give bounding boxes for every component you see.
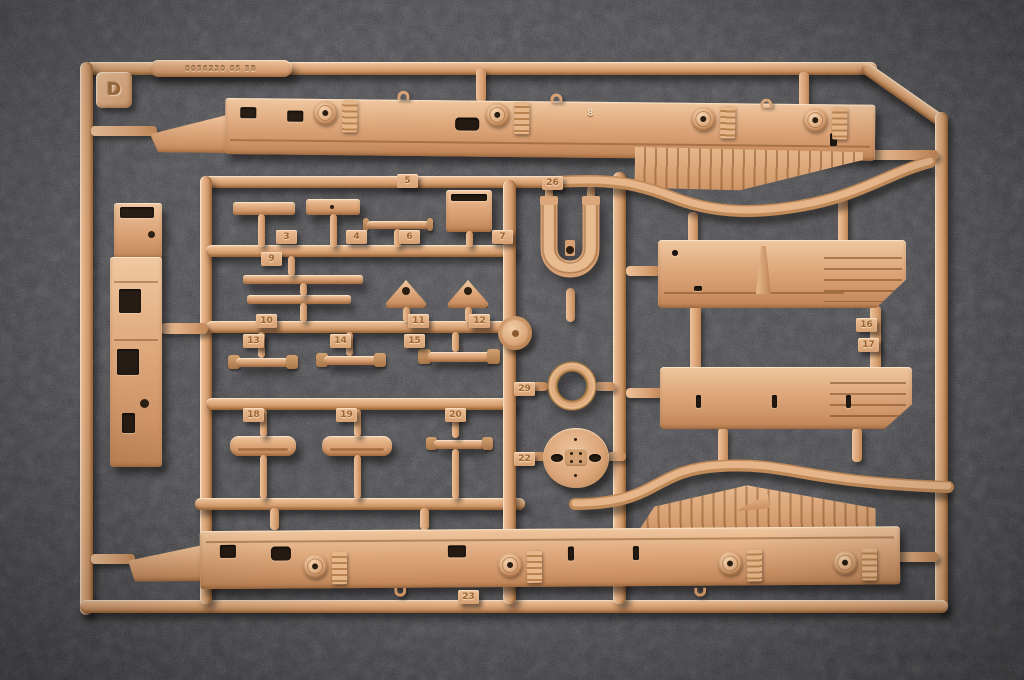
tag-label: 18 bbox=[247, 410, 260, 420]
part-number-tag: 12 bbox=[469, 314, 490, 328]
axle-hub bbox=[803, 108, 827, 132]
rod-end bbox=[427, 218, 433, 231]
panel-seam bbox=[114, 339, 158, 341]
part-chassis-rail-top: 8 bbox=[150, 92, 873, 192]
tag-label: 16 bbox=[860, 320, 873, 330]
axle-hub bbox=[485, 103, 509, 127]
part-equipment-box-upper bbox=[658, 240, 906, 308]
shackle bbox=[694, 588, 706, 597]
part-stem bbox=[260, 455, 267, 499]
tag-label: 11 bbox=[412, 316, 425, 326]
tag-label: 17 bbox=[862, 340, 875, 350]
part-number-tag: 15 bbox=[404, 334, 425, 348]
molded-part-number: 8 bbox=[587, 109, 593, 119]
bracket-detail bbox=[747, 549, 762, 581]
part-stem bbox=[300, 303, 307, 322]
part-number-tag: 7 bbox=[492, 230, 513, 244]
tag-label: 29 bbox=[518, 384, 531, 394]
part-stem bbox=[354, 455, 361, 499]
bracket-detail bbox=[527, 551, 542, 583]
drum-center-plate bbox=[565, 448, 587, 466]
bracket-detail bbox=[832, 107, 847, 139]
tag-label: 3 bbox=[283, 232, 289, 242]
part-number-tag: 26 bbox=[542, 176, 563, 190]
rail-cutout bbox=[448, 545, 466, 557]
part-number-tag: 4 bbox=[346, 230, 367, 244]
gusset-ribs bbox=[635, 145, 863, 191]
rail-cutout bbox=[240, 107, 256, 118]
coupler bbox=[482, 437, 493, 450]
part-tie-rod bbox=[367, 221, 429, 229]
dome-center bbox=[512, 330, 519, 337]
part-number-tag: 19 bbox=[336, 408, 357, 422]
drum-rivet bbox=[579, 460, 582, 463]
panel-slot bbox=[122, 413, 135, 433]
box-seam bbox=[664, 292, 844, 294]
lifting-eye bbox=[550, 93, 562, 102]
drum-rivet bbox=[579, 452, 582, 455]
rail-slot bbox=[568, 547, 574, 561]
part-ring bbox=[546, 361, 598, 411]
drum-rivet bbox=[570, 460, 573, 463]
rail-cutout bbox=[287, 111, 303, 122]
tag-label: 10 bbox=[260, 316, 273, 326]
part-mudguard-plate bbox=[230, 436, 296, 456]
part-number-tag: 29 bbox=[514, 382, 535, 396]
part-number-tag: 9 bbox=[261, 252, 282, 266]
box-slot bbox=[694, 286, 702, 291]
frame-left-rail bbox=[80, 62, 93, 615]
gate-stub bbox=[718, 428, 728, 468]
part-horseshoe-mount bbox=[533, 196, 607, 296]
sprue-letter: D bbox=[107, 80, 121, 100]
part-stem bbox=[452, 332, 459, 352]
part-number-tag: 6 bbox=[399, 230, 420, 244]
gate-stub bbox=[160, 323, 208, 334]
embossed-code: 0056230 05 5B bbox=[185, 65, 257, 73]
sprue-letter-tag: D bbox=[96, 72, 132, 108]
coupler bbox=[374, 353, 386, 367]
drum-slot bbox=[551, 454, 563, 462]
tag-label: 14 bbox=[334, 336, 347, 346]
coupler bbox=[286, 355, 298, 369]
part-axle bbox=[434, 440, 484, 449]
sprue-photo: D 0056230 05 5B bbox=[0, 0, 1024, 680]
part-number-tag: 11 bbox=[408, 314, 429, 328]
drum-rivet bbox=[570, 452, 573, 455]
tag-label: 4 bbox=[353, 232, 359, 242]
gate-stub bbox=[91, 126, 157, 136]
part-mudguard-plate bbox=[322, 436, 392, 456]
axle-hub bbox=[498, 553, 522, 577]
tag-label: 7 bbox=[499, 232, 505, 242]
lifting-eye bbox=[760, 99, 772, 108]
plate-groove bbox=[238, 448, 288, 451]
tag-label: 12 bbox=[473, 316, 486, 326]
part-number-tag: 13 bbox=[243, 334, 264, 348]
rail-cutout bbox=[271, 547, 291, 561]
gate-stub bbox=[868, 150, 938, 160]
rail-taper bbox=[150, 112, 234, 153]
bar-hole bbox=[330, 205, 334, 209]
box-louvers bbox=[830, 373, 906, 423]
tag-label: 20 bbox=[449, 410, 462, 420]
part-number-tag: 16 bbox=[856, 318, 877, 332]
axle-hub bbox=[718, 551, 742, 575]
part-axle bbox=[324, 356, 378, 365]
part-stem bbox=[452, 449, 459, 499]
part-axle bbox=[236, 358, 290, 367]
gate-stub bbox=[690, 306, 701, 370]
drum-rivet bbox=[574, 474, 577, 477]
lifting-eye bbox=[397, 91, 409, 100]
tag-label: 13 bbox=[247, 336, 260, 346]
frame-right-rail bbox=[935, 112, 948, 612]
ribbed-gusset-wing bbox=[635, 145, 863, 191]
bracket-detail bbox=[862, 548, 877, 580]
rail-cutout bbox=[220, 545, 236, 558]
part-number-tag: 23 bbox=[458, 590, 479, 604]
axle-hub bbox=[833, 551, 857, 575]
part-stem bbox=[258, 214, 265, 247]
coupler bbox=[487, 349, 500, 364]
tag-label: 19 bbox=[340, 410, 353, 420]
panel-window bbox=[117, 349, 139, 375]
tag-label: 23 bbox=[462, 592, 475, 602]
panel-seam bbox=[114, 281, 158, 283]
bracket-detail bbox=[514, 102, 529, 134]
part-stem bbox=[288, 256, 295, 276]
part-chassis-rail-bottom bbox=[128, 512, 891, 609]
part-equipment-box-lower bbox=[660, 367, 912, 429]
part-number-tag: 22 bbox=[514, 452, 535, 466]
box-opening bbox=[451, 194, 487, 201]
plate-groove bbox=[330, 448, 384, 451]
gate-stub bbox=[626, 388, 662, 398]
bracket-hole bbox=[464, 287, 472, 295]
panel-hole bbox=[148, 231, 155, 238]
bracket-hole bbox=[402, 287, 410, 295]
bracket-detail bbox=[342, 100, 357, 132]
axle-hub bbox=[691, 107, 715, 131]
bracket-detail bbox=[332, 552, 347, 584]
part-number-tag: 18 bbox=[243, 408, 264, 422]
rail-slot bbox=[633, 546, 639, 560]
embossed-code-plate: 0056230 05 5B bbox=[150, 60, 292, 77]
tag-label: 22 bbox=[518, 454, 531, 464]
tag-label: 6 bbox=[406, 232, 412, 242]
tag-label: 9 bbox=[268, 254, 274, 264]
part-strip bbox=[247, 295, 351, 304]
gate-stub bbox=[838, 196, 848, 244]
part-number-tag: 5 bbox=[397, 174, 418, 188]
drum-slot bbox=[589, 454, 601, 462]
part-stem bbox=[330, 214, 337, 247]
panel-opening bbox=[120, 207, 154, 218]
part-axle bbox=[428, 352, 490, 362]
box-slot bbox=[772, 395, 777, 408]
tag-label: 26 bbox=[546, 178, 559, 188]
bracket-detail bbox=[720, 106, 735, 138]
tag-label: 5 bbox=[404, 176, 410, 186]
gate-stub bbox=[626, 266, 660, 276]
part-stem bbox=[607, 452, 626, 461]
box-slot bbox=[696, 395, 701, 408]
box-slot bbox=[846, 395, 851, 408]
part-number-tag: 20 bbox=[445, 408, 466, 422]
part-number-tag: 14 bbox=[330, 334, 351, 348]
drum-rivet bbox=[574, 438, 577, 441]
shackle bbox=[394, 588, 406, 597]
part-small-bar bbox=[233, 202, 295, 215]
tag-label: 15 bbox=[408, 336, 421, 346]
part-stem bbox=[466, 231, 473, 247]
part-number-tag: 3 bbox=[276, 230, 297, 244]
axle-hub bbox=[313, 101, 337, 125]
part-side-panel bbox=[110, 203, 166, 467]
rail-cutout bbox=[455, 117, 479, 130]
panel-hole bbox=[140, 399, 149, 408]
runner-row-d bbox=[195, 498, 525, 510]
panel-window bbox=[119, 289, 141, 313]
part-number-tag: 10 bbox=[256, 314, 277, 328]
gate-stub bbox=[852, 428, 862, 462]
part-number-tag: 17 bbox=[858, 338, 879, 352]
axle-hub bbox=[303, 554, 327, 578]
box-slot bbox=[672, 250, 678, 256]
part-stem bbox=[300, 283, 307, 296]
part-stem bbox=[595, 382, 615, 391]
gate-stub bbox=[688, 212, 698, 244]
